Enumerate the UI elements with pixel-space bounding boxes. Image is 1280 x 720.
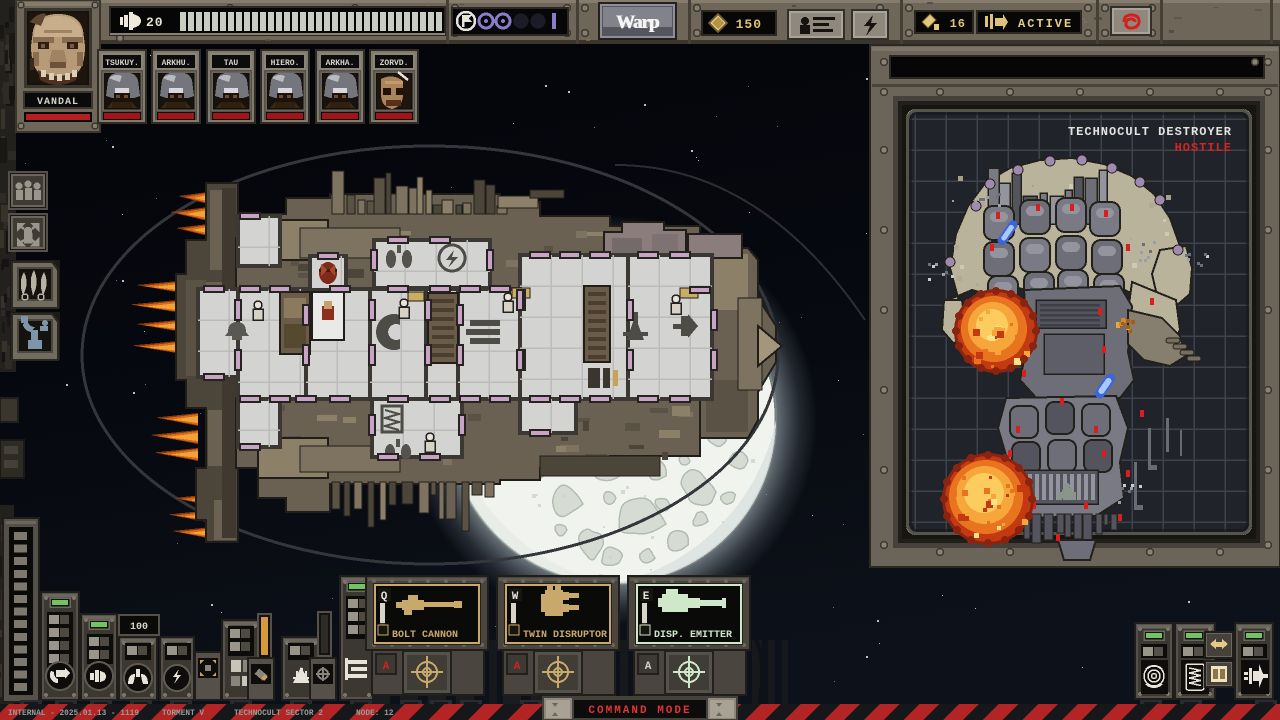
svg-text:ZORVD.: ZORVD. (380, 59, 409, 68)
svg-text:HIERO.: HIERO. (271, 59, 300, 68)
svg-text:TWIN DISRUPTOR: TWIN DISRUPTOR (523, 630, 607, 641)
svg-text:NODE: 12: NODE: 12 (356, 710, 394, 718)
svg-text:TSUKUY.: TSUKUY. (105, 59, 139, 68)
svg-text:BOLT CANNON: BOLT CANNON (392, 630, 458, 641)
svg-text:HOSTILE: HOSTILE (1175, 141, 1232, 155)
svg-text:ARKHA.: ARKHA. (326, 59, 355, 68)
svg-text:ACTIVE: ACTIVE (1018, 17, 1073, 31)
svg-text:100: 100 (130, 622, 148, 633)
svg-text:Q: Q (381, 591, 388, 603)
svg-text:16: 16 (950, 17, 966, 31)
svg-text:Warp: Warp (616, 12, 659, 33)
svg-text:COMMAND MODE: COMMAND MODE (588, 705, 691, 717)
svg-text:A: A (383, 661, 390, 673)
svg-text:VANDAL: VANDAL (37, 97, 79, 108)
svg-text:TECHNOCULT SECTOR 2: TECHNOCULT SECTOR 2 (234, 710, 323, 718)
svg-text:W: W (512, 591, 519, 603)
svg-text:INTERNAL - 2025.01.13 - 1119: INTERNAL - 2025.01.13 - 1119 (8, 710, 139, 718)
svg-text:DISP. EMITTER: DISP. EMITTER (654, 630, 732, 641)
svg-text:TAU: TAU (224, 59, 239, 68)
svg-text:E: E (643, 591, 650, 603)
svg-text:TECHNOCULT DESTROYER: TECHNOCULT DESTROYER (1068, 125, 1232, 139)
svg-text:20: 20 (146, 15, 164, 30)
svg-text:A: A (514, 661, 521, 673)
svg-text:TORMENT V: TORMENT V (162, 710, 204, 718)
svg-text:150: 150 (736, 17, 762, 32)
svg-text:A: A (645, 661, 652, 673)
svg-text:ARKHU.: ARKHU. (162, 59, 191, 68)
